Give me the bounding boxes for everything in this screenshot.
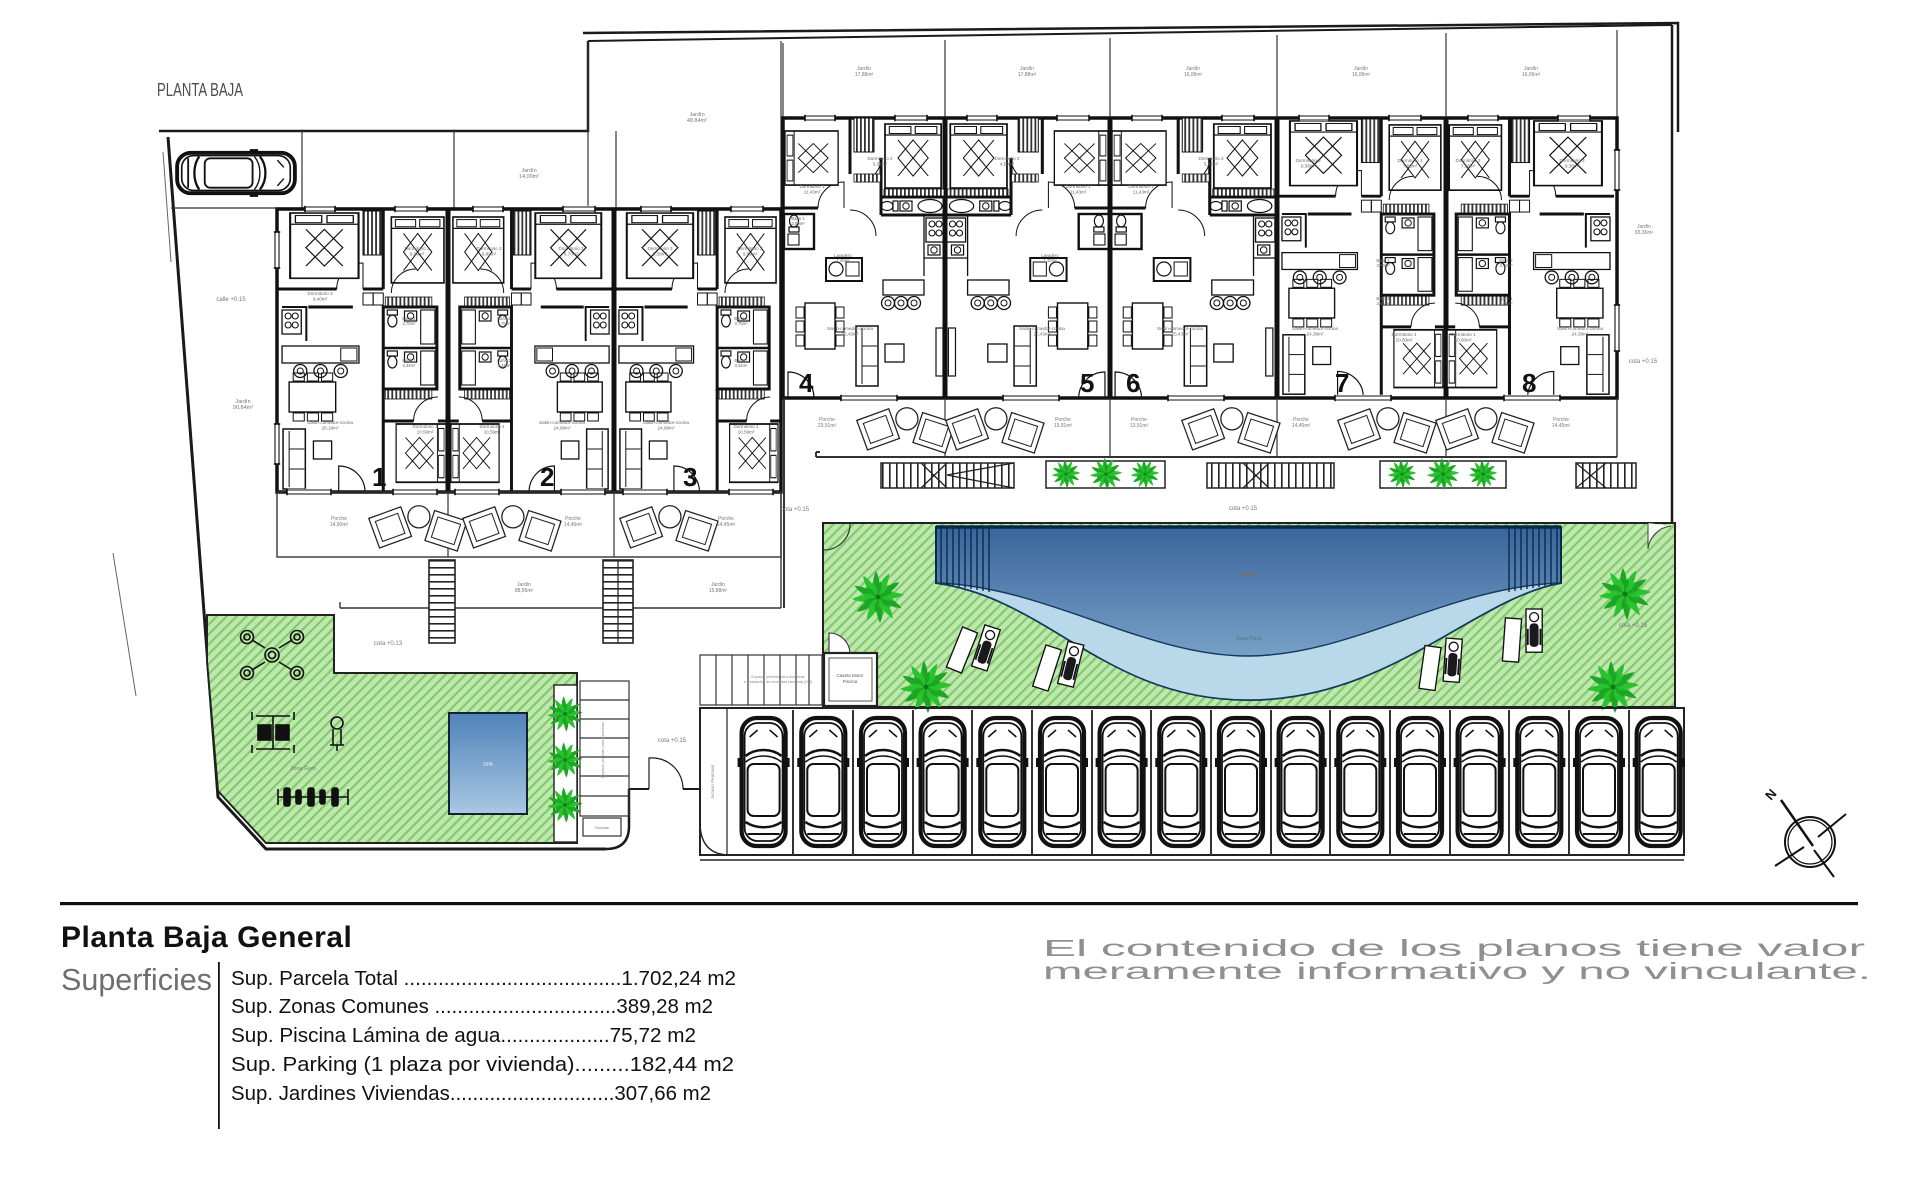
svg-text:Baño 23,75m²: Baño 23,75m²: [497, 316, 511, 326]
svg-text:Porche23,91m²: Porche23,91m²: [818, 417, 837, 429]
svg-text:Acceso Peatonal: Acceso Peatonal: [710, 765, 715, 799]
svg-text:Baño 13,44m²: Baño 13,44m²: [1376, 296, 1390, 306]
svg-text:Zona Playa: Zona Playa: [1236, 636, 1262, 642]
svg-text:SPA: SPA: [483, 762, 493, 768]
svg-text:Baño 13,80m²: Baño 13,80m²: [791, 216, 805, 226]
svg-text:Jardín14,00m²: Jardín14,00m²: [519, 168, 539, 180]
svg-text:7: 7: [1335, 368, 1349, 398]
svg-text:Sup. Zonas Comunes ...........: Sup. Zonas Comunes .....................…: [231, 995, 713, 1018]
svg-text:Duchas: Duchas: [595, 825, 609, 830]
svg-text:Sup. Piscina Lámina de agua...: Sup. Piscina Lámina de agua.............…: [231, 1024, 696, 1047]
svg-text:Porche14,90m²: Porche14,90m²: [330, 516, 349, 528]
svg-text:Superficies: Superficies: [61, 962, 212, 997]
svg-text:2: 2: [540, 462, 554, 492]
svg-text:cota +0.15: cota +0.15: [781, 507, 810, 513]
svg-text:Baño 23,70m²: Baño 23,70m²: [1376, 258, 1390, 268]
svg-text:Porche13,91m²: Porche13,91m²: [1054, 417, 1073, 429]
svg-text:Jardín16,06m²: Jardín16,06m²: [1522, 66, 1541, 78]
svg-text:Jardín17,88m²: Jardín17,88m²: [855, 66, 874, 78]
svg-text:Zona Gym: Zona Gym: [290, 766, 316, 772]
svg-text:Jardín65,36m²: Jardín65,36m²: [1635, 224, 1654, 236]
svg-text:Porche13,91m²: Porche13,91m²: [1130, 417, 1149, 429]
svg-text:Baño 13,44m²: Baño 13,44m²: [497, 358, 511, 368]
svg-text:Espacio previsto para biciclet: Espacio previsto para bicicletas: [600, 722, 605, 778]
svg-text:cota +0.15: cota +0.15: [1229, 506, 1258, 512]
svg-text:Planta Baja General: Planta Baja General: [61, 921, 352, 954]
svg-text:5: 5: [1080, 368, 1094, 398]
svg-text:3: 3: [683, 462, 697, 492]
svg-text:Sup. Parcela Total ...........: Sup. Parcela Total .....................…: [231, 967, 736, 990]
svg-text:cota +0.15: cota +0.15: [658, 738, 687, 744]
svg-text:Baño 23,75m²: Baño 23,75m²: [402, 316, 416, 326]
svg-text:Sup. Jardines Viviendas.......: Sup. Jardines Viviendas.................…: [231, 1082, 711, 1105]
svg-text:Jardín88,56m²: Jardín88,56m²: [515, 582, 534, 594]
svg-text:cota +0.13: cota +0.13: [374, 641, 403, 647]
svg-text:Baño 13,44m²: Baño 13,44m²: [1499, 296, 1513, 306]
svg-text:Porche14,45m²: Porche14,45m²: [717, 516, 736, 528]
svg-text:8: 8: [1522, 368, 1536, 398]
svg-text:PLANTA BAJA: PLANTA BAJA: [157, 80, 243, 100]
svg-text:Jardín16,06m²: Jardín16,06m²: [1352, 66, 1371, 78]
svg-text:Baño 23,70m²: Baño 23,70m²: [1499, 258, 1513, 268]
svg-text:Jardín15,88m²: Jardín15,88m²: [709, 582, 728, 594]
svg-text:Baño 13,44m²: Baño 13,44m²: [734, 358, 748, 368]
svg-text:cota +0.15: cota +0.15: [1619, 623, 1648, 629]
svg-text:Espacio previsto para biciclet: Espacio previsto para bicicletase instal…: [744, 675, 813, 684]
svg-text:4: 4: [799, 368, 814, 398]
svg-text:Porche14,45m²: Porche14,45m²: [564, 516, 583, 528]
svg-text:meramente informativo y no vin: meramente informativo y no vinculante.: [1043, 958, 1871, 984]
svg-text:cota +0.15: cota +0.15: [1629, 359, 1658, 365]
svg-text:Porche14,45m²: Porche14,45m²: [1552, 417, 1571, 429]
svg-text:Piscina: Piscina: [1240, 572, 1256, 578]
svg-text:calle +0.15: calle +0.15: [216, 297, 246, 303]
svg-text:6: 6: [1126, 368, 1140, 398]
svg-text:Sup. Parking (1 plaza por vivi: Sup. Parking (1 plaza por vivienda).....…: [231, 1053, 734, 1076]
svg-text:Porche14,45m²: Porche14,45m²: [1292, 417, 1311, 429]
svg-text:Jardín17,88m²: Jardín17,88m²: [1018, 66, 1037, 78]
svg-text:Jardín48,84m²: Jardín48,84m²: [687, 112, 707, 124]
svg-text:1: 1: [372, 462, 386, 492]
svg-text:Jardín90,84m²: Jardín90,84m²: [233, 399, 253, 411]
svg-text:Baño 23,75m²: Baño 23,75m²: [734, 316, 748, 326]
svg-text:Jardín16,06m²: Jardín16,06m²: [1184, 66, 1203, 78]
svg-text:Baño 13,44m²: Baño 13,44m²: [402, 358, 416, 368]
